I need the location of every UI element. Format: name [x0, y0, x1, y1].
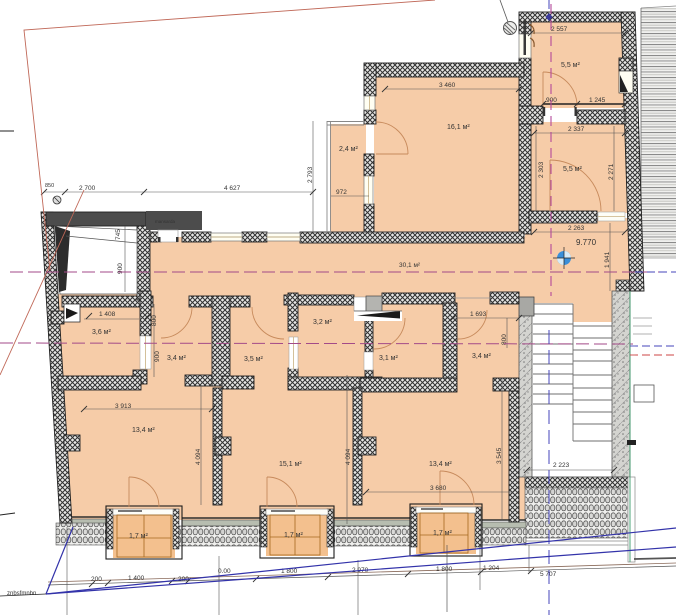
svg-text:5 707: 5 707	[540, 571, 557, 578]
svg-text:2 793: 2 793	[307, 166, 314, 183]
svg-text:972: 972	[336, 189, 347, 196]
svg-text:2 263: 2 263	[568, 225, 585, 232]
svg-text:2 700: 2 700	[79, 185, 96, 192]
svg-text:1 245: 1 245	[589, 97, 606, 104]
svg-text:15,1 м²: 15,1 м²	[279, 461, 302, 468]
svg-text:mansarda: mansarda	[155, 219, 176, 224]
svg-text:4 094: 4 094	[195, 448, 202, 465]
svg-text:9.770: 9.770	[576, 238, 597, 247]
svg-text:2,4 м²: 2,4 м²	[339, 146, 358, 153]
svg-text:3 545: 3 545	[496, 447, 503, 464]
svg-text:1 693: 1 693	[470, 311, 487, 318]
svg-text:3,5 м²: 3,5 м²	[244, 356, 263, 363]
svg-text:900: 900	[154, 351, 161, 362]
svg-text:745: 745	[115, 229, 122, 240]
svg-text:4 627: 4 627	[224, 185, 241, 192]
svg-text:2 557: 2 557	[551, 26, 568, 33]
svg-text:3 680: 3 680	[430, 485, 447, 492]
svg-text:5,5 м²: 5,5 м²	[563, 166, 582, 173]
svg-text:4 094: 4 094	[345, 448, 352, 465]
svg-text:1 941: 1 941	[604, 251, 611, 268]
svg-text:900: 900	[546, 97, 557, 104]
svg-text:2 271: 2 271	[608, 163, 615, 180]
svg-text:1,7 м²: 1,7 м²	[284, 532, 303, 539]
svg-text:1 408: 1 408	[99, 311, 116, 318]
svg-text:1 400: 1 400	[128, 575, 145, 582]
svg-text:1,7 м²: 1,7 м²	[129, 533, 148, 540]
svg-text:3,1 м²: 3,1 м²	[379, 355, 398, 362]
svg-text:1,7 м²: 1,7 м²	[433, 530, 452, 537]
svg-text:16,1 м²: 16,1 м²	[447, 124, 470, 131]
svg-text:2 303: 2 303	[538, 161, 545, 178]
svg-text:3,2 м²: 3,2 м²	[313, 319, 332, 326]
svg-text:13,4 м²: 13,4 м²	[132, 427, 155, 434]
svg-text:0.00: 0.00	[218, 568, 231, 575]
svg-text:2 337: 2 337	[568, 126, 585, 133]
svg-text:3,6 м²: 3,6 м²	[92, 329, 111, 336]
svg-text:800: 800	[151, 315, 158, 326]
svg-text:3,4 м²: 3,4 м²	[472, 353, 491, 360]
svg-text:1 204: 1 204	[483, 565, 500, 572]
svg-text:5,5 м²: 5,5 м²	[561, 62, 580, 69]
svg-text:1 800: 1 800	[436, 566, 453, 573]
svg-text:znbsfmnbn: znbsfmnbn	[7, 591, 36, 597]
svg-text:200: 200	[91, 576, 102, 583]
svg-text:13,4 м²: 13,4 м²	[429, 461, 452, 468]
svg-text:30,1 м²: 30,1 м²	[399, 262, 421, 269]
svg-text:3,4 м²: 3,4 м²	[167, 355, 186, 362]
svg-text:850: 850	[45, 183, 54, 189]
svg-text:3 913: 3 913	[115, 403, 132, 410]
svg-text:2 223: 2 223	[553, 462, 570, 469]
svg-text:3 460: 3 460	[439, 82, 456, 89]
